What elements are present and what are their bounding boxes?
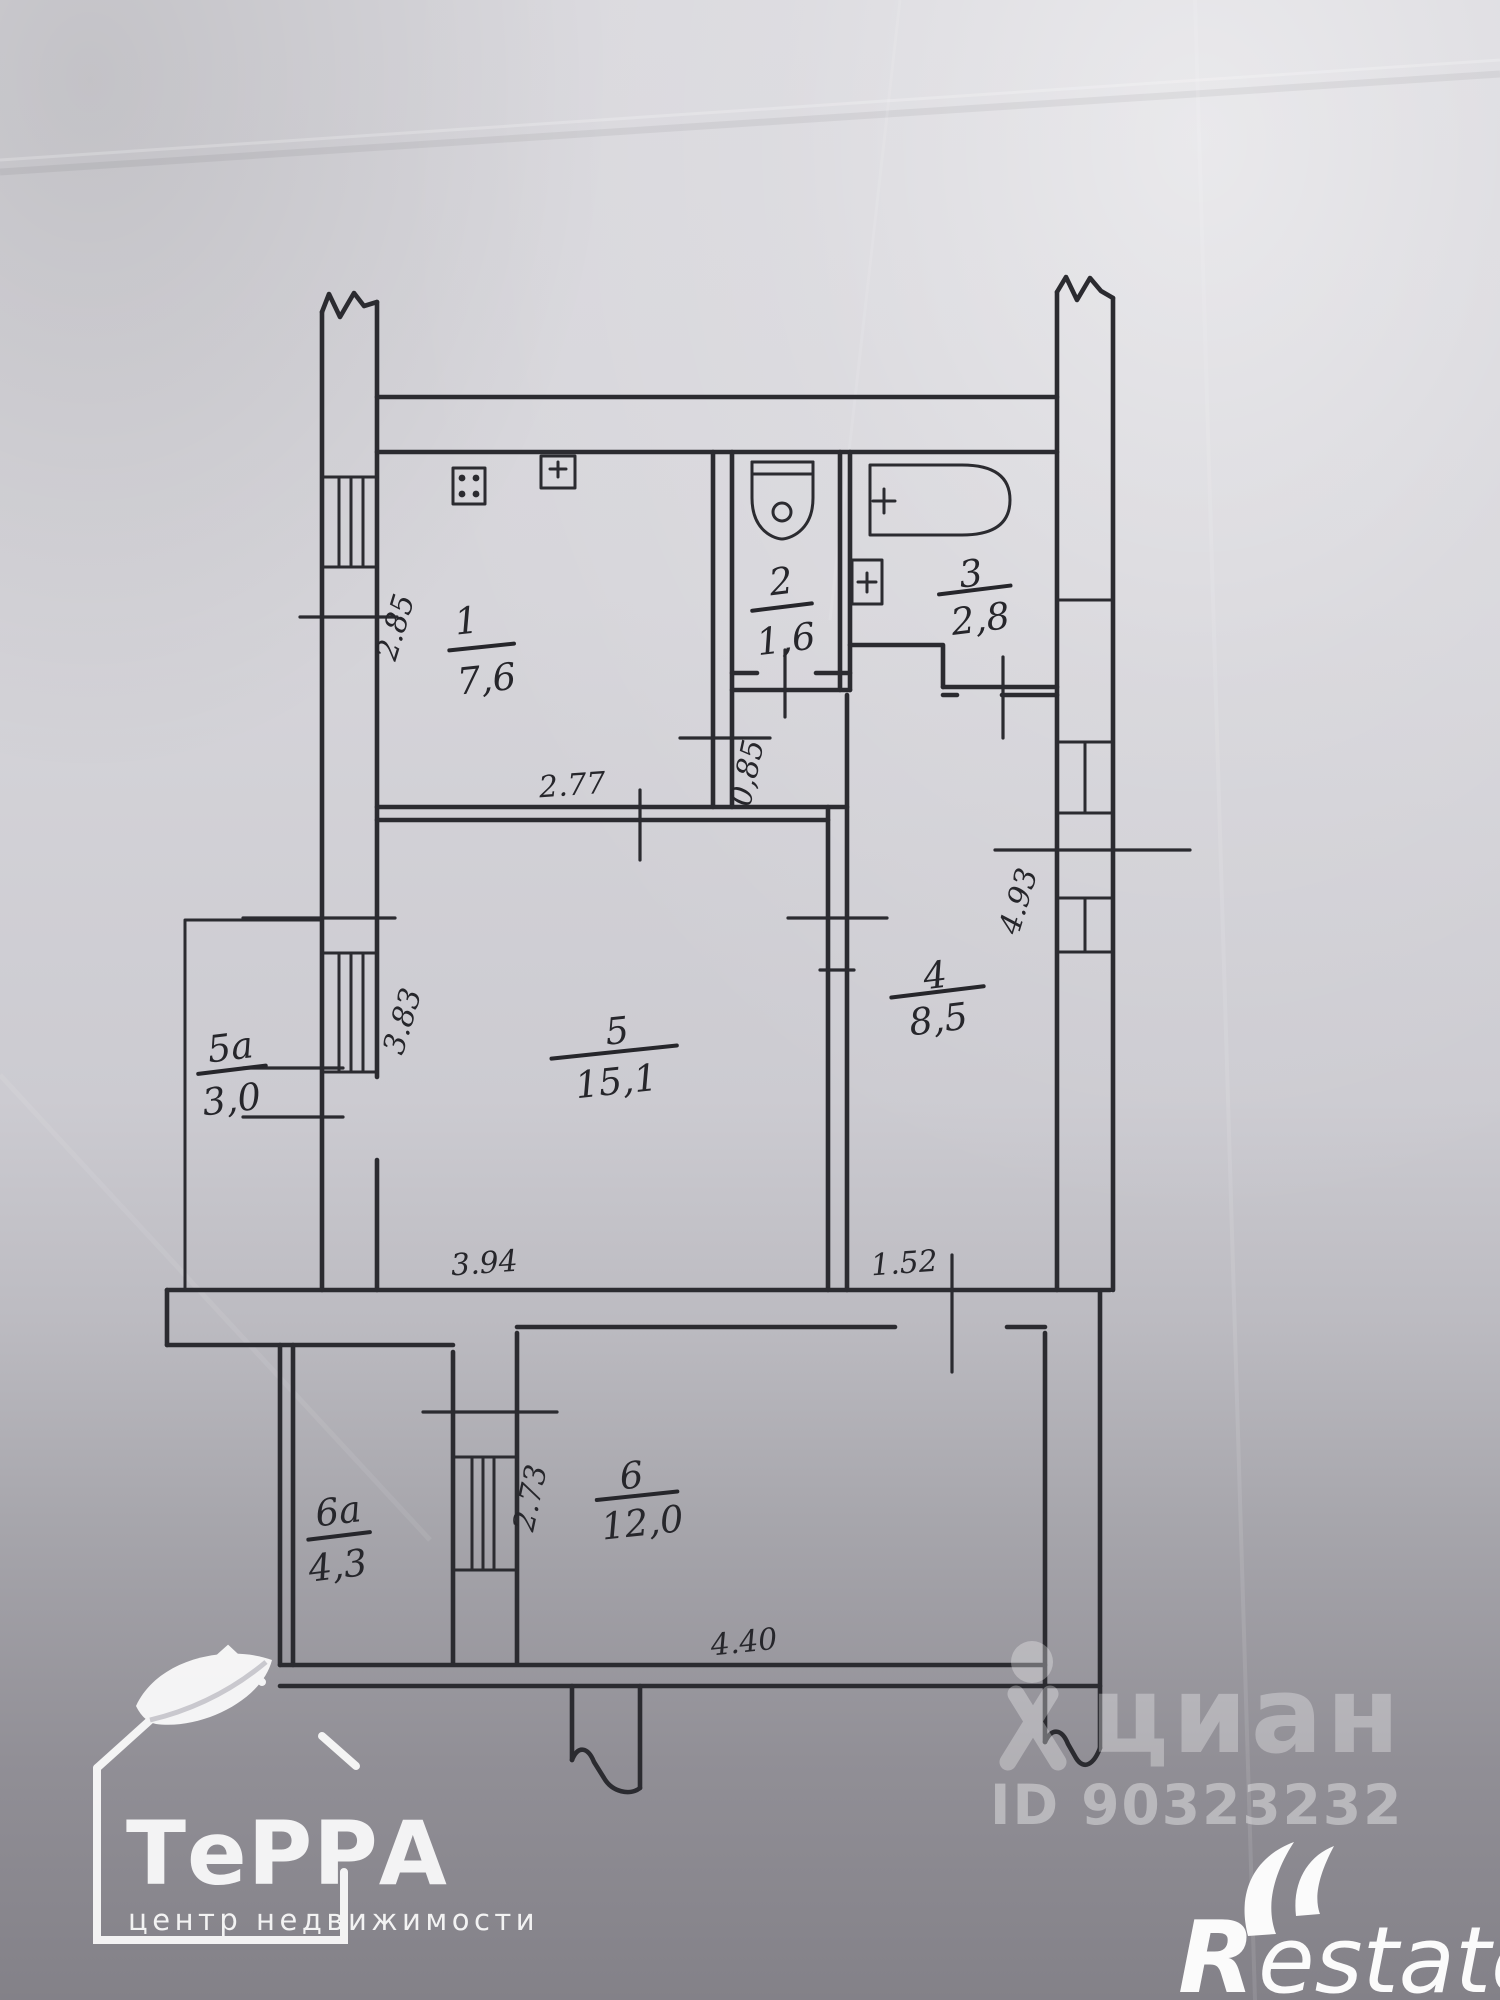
dim-room5-bottom: 3.94 <box>450 1244 519 1284</box>
terra-logo-subtitle: центр недвижимости <box>128 1903 539 1937</box>
svg-text:6а: 6а <box>313 1487 364 1535</box>
dim-hall-bottom: 1.52 <box>870 1244 939 1284</box>
svg-text:1,6: 1,6 <box>754 614 818 664</box>
svg-text:8,5: 8,5 <box>907 995 971 1045</box>
floor-plan-photo: { "rooms": [ {"number": "1", "area": "7,… <box>0 0 1500 2000</box>
svg-text:6: 6 <box>617 1453 645 1498</box>
svg-text:5: 5 <box>603 1009 631 1054</box>
svg-text:2,8: 2,8 <box>948 594 1013 644</box>
terra-logo-text: ТеРРА <box>126 1802 448 1905</box>
restate-logo-estate: estate <box>1258 1907 1500 2000</box>
svg-text:1: 1 <box>452 598 480 643</box>
dim-room6-bottom: 4.40 <box>708 1622 779 1664</box>
svg-text:5а: 5а <box>205 1023 256 1071</box>
cian-watermark-text: циан <box>1090 1654 1404 1777</box>
plan-canvas: 1 7,6 2 1,6 3 2,8 4 8,5 5 15,1 5а 3,0 <box>0 0 1500 2000</box>
svg-text:12,0: 12,0 <box>599 1497 685 1548</box>
dim-kitchen-bottom: 2.77 <box>537 766 608 806</box>
cian-person-icon <box>1011 1641 1053 1683</box>
svg-text:2: 2 <box>766 559 796 605</box>
svg-text:3,0: 3,0 <box>200 1075 264 1125</box>
cian-id-watermark: ID 90323232 <box>990 1773 1403 1837</box>
svg-text:4,3: 4,3 <box>305 1541 370 1591</box>
svg-text:15,1: 15,1 <box>573 1056 659 1107</box>
svg-text:7,6: 7,6 <box>455 655 518 704</box>
restate-logo-r: R <box>1178 1899 1255 2000</box>
